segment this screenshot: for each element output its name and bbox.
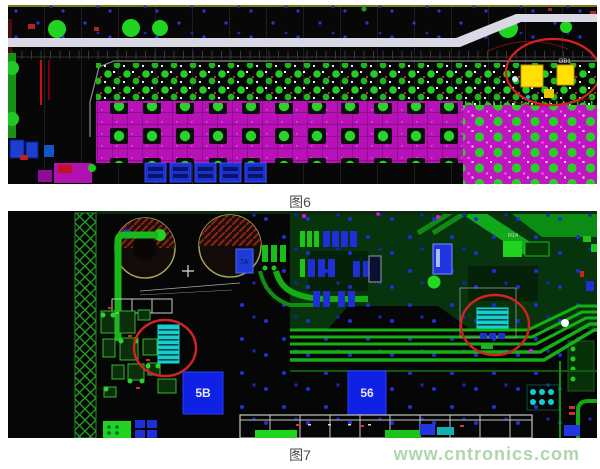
ref-des-label: R14 bbox=[508, 233, 518, 239]
white-dot bbox=[561, 319, 569, 327]
pcb-figure6-canvas: DB1 bbox=[8, 5, 597, 184]
keepout-hatch-column bbox=[75, 213, 96, 438]
chip-56-label: 56 bbox=[360, 386, 374, 400]
pcb-layout-figure6: DB1 bbox=[8, 5, 597, 184]
copper-pour-magenta-left bbox=[96, 101, 463, 163]
figure6-caption: 图6 bbox=[0, 194, 600, 211]
blue-component-row bbox=[145, 163, 266, 182]
figure7-caption-text: 图7 bbox=[289, 447, 311, 463]
teal-component-1 bbox=[158, 325, 179, 363]
pcb-layout-figure7: 5B 7A R14 bbox=[8, 211, 597, 438]
figure6-caption-text: 图6 bbox=[289, 194, 311, 210]
article-page: DB1 图6 bbox=[0, 0, 600, 469]
small-ic-label: 7A bbox=[240, 259, 249, 266]
site-watermark: www.cntronics.com bbox=[394, 444, 580, 465]
chip-5b-label: 5B bbox=[195, 386, 211, 400]
chip-56: 56 bbox=[348, 371, 386, 415]
copper-pour-magenta-right bbox=[463, 101, 597, 184]
chip-5b: 5B bbox=[183, 372, 223, 414]
pcb-figure7-canvas: 5B 7A R14 bbox=[8, 211, 597, 438]
component-label: DB1 bbox=[559, 59, 571, 65]
